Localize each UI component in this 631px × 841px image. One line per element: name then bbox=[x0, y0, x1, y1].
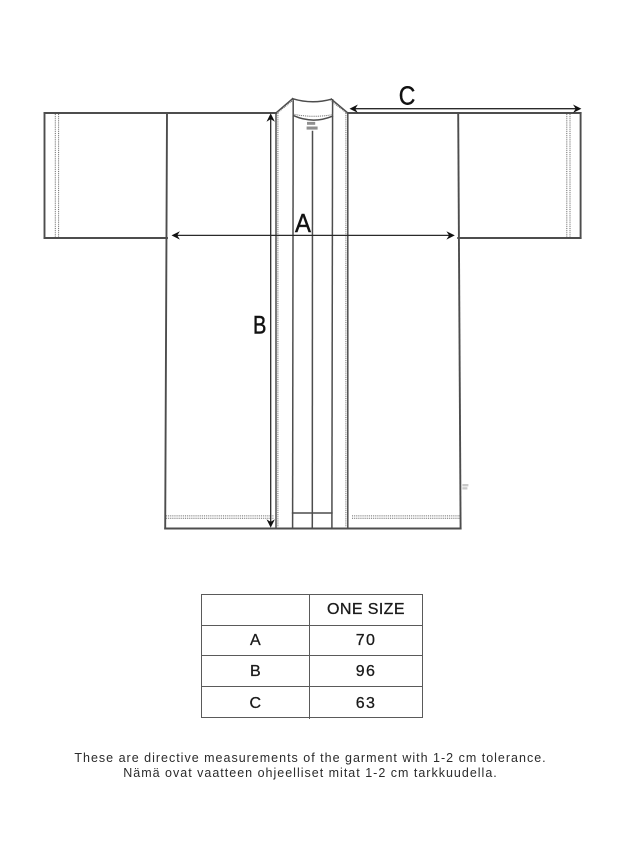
svg-text:A: A bbox=[295, 209, 311, 238]
svg-text:B: B bbox=[253, 311, 266, 339]
svg-text:C: C bbox=[399, 82, 416, 110]
